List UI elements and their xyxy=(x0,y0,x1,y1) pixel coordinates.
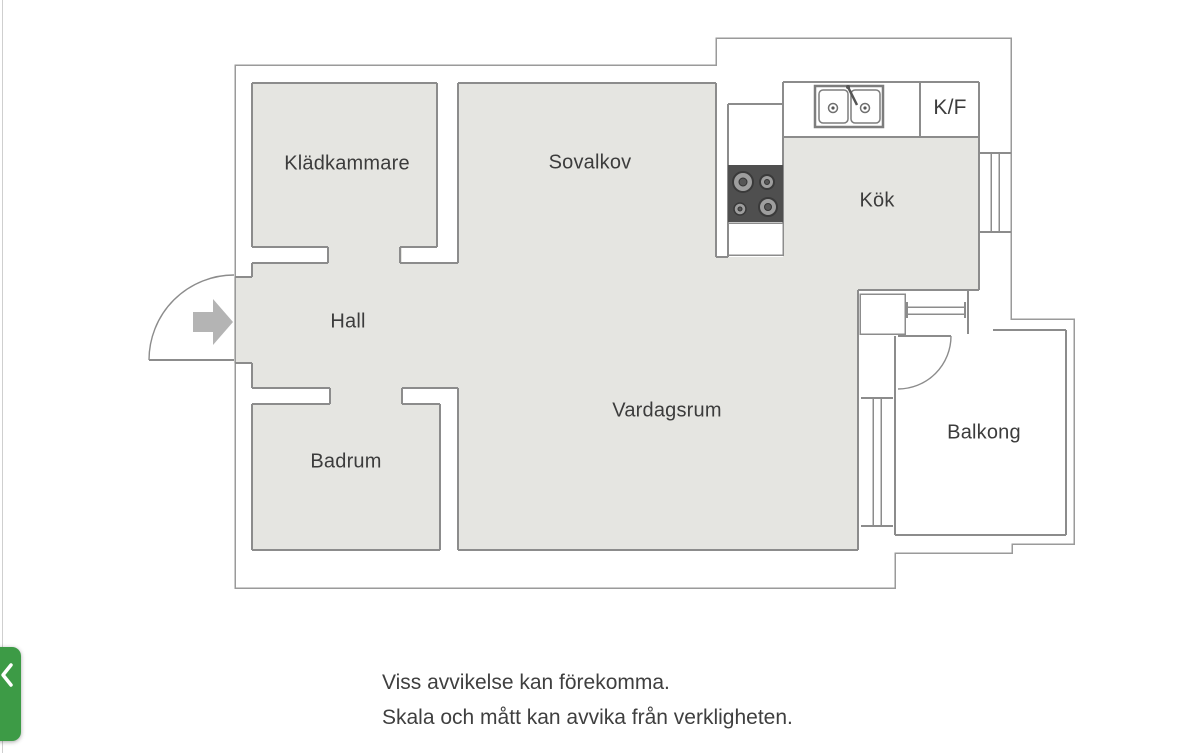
floor-kladkammare-doorway xyxy=(328,247,402,263)
back-button[interactable] xyxy=(0,647,21,741)
room-label-hall: Hall xyxy=(330,311,365,334)
floor-entrance-opening xyxy=(234,277,252,363)
window-kitchen-balcony-icon xyxy=(907,307,965,314)
room-label-kladkammare: Klädkammare xyxy=(284,153,410,176)
room-label-vardagsrum: Vardagsrum xyxy=(612,400,721,423)
floorplan-diagram xyxy=(0,0,1200,753)
entrance-arrow-icon xyxy=(193,299,233,345)
double-sink-icon xyxy=(815,85,883,127)
stove-icon xyxy=(728,165,783,222)
floor-kok-opening xyxy=(716,257,783,290)
window-kitchen-east-icon xyxy=(991,153,999,232)
window-livingroom-balcony-caps xyxy=(861,398,893,526)
room-label-kok: Kök xyxy=(859,190,894,213)
room-label-sovalkov: Sovalkov xyxy=(549,152,632,175)
chevron-left-icon xyxy=(0,662,14,688)
window-livingroom-balcony-icon xyxy=(873,398,881,526)
wall-block-balcony xyxy=(860,294,905,334)
room-label-badrum: Badrum xyxy=(310,451,381,474)
window-kitchen-east-caps xyxy=(979,153,1011,232)
room-label-kf: K/F xyxy=(933,96,966,120)
floor-kok xyxy=(783,137,979,290)
disclaimer-line-2: Skala och mått kan avvika från verklighe… xyxy=(382,706,793,730)
disclaimer-line-1: Viss avvikelse kan förekomma. xyxy=(382,671,670,695)
counter-below-stove xyxy=(728,223,783,255)
balcony-door-arc-icon xyxy=(898,336,951,389)
floor-badrum xyxy=(252,404,440,550)
floor-badrum-doorway xyxy=(330,388,402,404)
window-kitchen-balcony-caps xyxy=(907,302,965,318)
room-label-balkong: Balkong xyxy=(947,422,1021,445)
